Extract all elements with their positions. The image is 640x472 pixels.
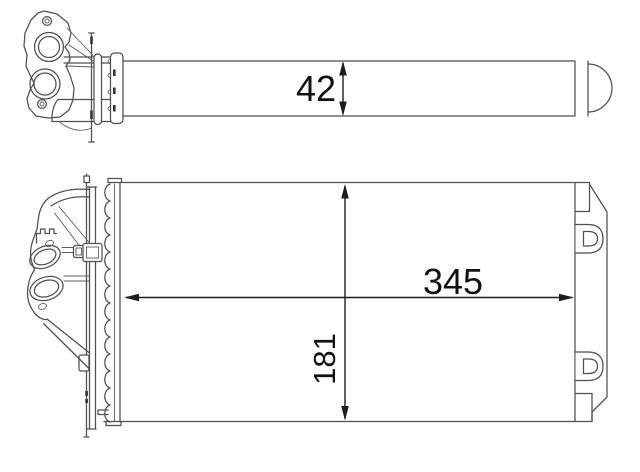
side-rod-mark-top (90, 37, 93, 45)
front-mounting-bracket-bottom (576, 352, 604, 381)
front-tank-outline (590, 185, 607, 422)
front-rod-cap (84, 176, 90, 183)
front-rod-mark (85, 399, 88, 403)
side-gusset-lines (66, 28, 93, 67)
dimension-42-label: 42 (296, 68, 336, 109)
front-crimp-strip (105, 184, 110, 422)
front-screw-hole-bottom (38, 302, 48, 310)
side-upper-port-inner (39, 37, 60, 58)
dimension-42-arrow-down (339, 102, 347, 117)
front-plate-clamp (83, 244, 102, 262)
dimension-42-arrow-up (339, 61, 347, 76)
front-rod-mark (85, 391, 88, 396)
side-flange-outline (24, 11, 74, 118)
side-screw-hole-top-inner (45, 19, 49, 23)
technical-drawing: 42 345 181 (0, 0, 640, 472)
side-screw-hole-bottom (38, 100, 47, 109)
side-header-plate (111, 53, 124, 124)
side-bracket-bar (94, 54, 102, 125)
side-rod-mark-bottom (90, 111, 93, 120)
front-crown-notch (37, 229, 57, 243)
front-mounting-rod (84, 174, 89, 437)
drawing-canvas: 42 345 181 (0, 0, 640, 472)
dimension-181-arrow-down (341, 406, 349, 421)
side-header-tab (113, 88, 116, 95)
side-header-tab (113, 70, 116, 77)
front-upper-port-inner (32, 246, 59, 268)
side-lower-brace-curve (60, 123, 92, 131)
front-drain-stub (98, 410, 108, 415)
front-flange-outline (28, 199, 49, 320)
front-bracket-plate (87, 187, 97, 429)
front-flange-bottom-arm (44, 319, 90, 369)
front-flange-top-arm (48, 189, 90, 206)
dimension-181-label: 181 (307, 333, 342, 385)
side-end-cap-dome (588, 64, 612, 112)
side-lower-port-inner (34, 73, 56, 95)
dimension-345-arrow-right (559, 294, 574, 302)
side-header-tab (113, 105, 116, 112)
side-core-body (123, 61, 588, 116)
dimension-thickness-42: 42 (296, 61, 347, 116)
dimension-345-label: 345 (423, 261, 483, 302)
front-tank-bottom-pad (576, 394, 593, 422)
side-screw-hole-bottom-inner (40, 102, 44, 106)
front-view (26, 174, 607, 437)
front-tank-top-pad (576, 183, 590, 212)
front-mounting-bracket-top (576, 225, 604, 254)
front-lower-port-outer (27, 272, 66, 304)
front-core-face (104, 183, 592, 422)
dimension-width-345: 345 (124, 261, 574, 302)
dimension-345-arrow-left (124, 294, 139, 302)
dimension-181-arrow-up (341, 184, 349, 199)
front-screw-hole-top (44, 239, 54, 248)
side-screw-hole-top (43, 17, 52, 26)
dimension-height-181: 181 (307, 184, 349, 421)
side-upper-pipe (64, 57, 110, 63)
